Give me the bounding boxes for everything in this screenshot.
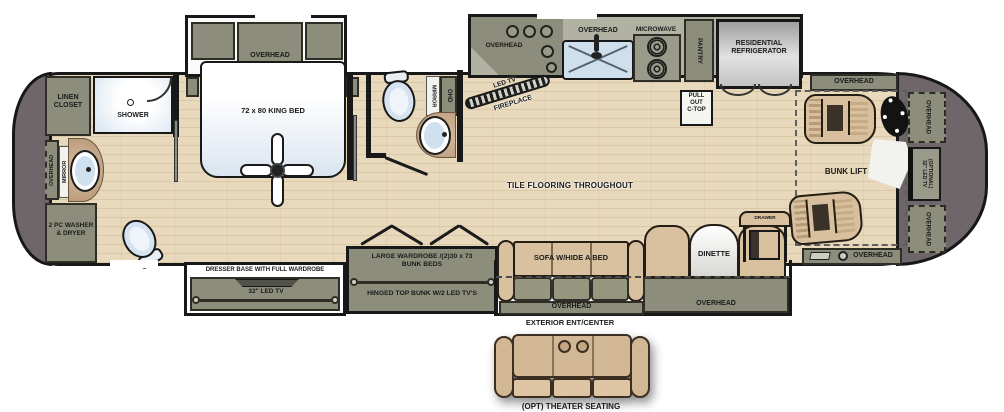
rear-faucet-icon — [86, 167, 91, 172]
entry-window — [110, 260, 158, 268]
burner-icon — [647, 59, 667, 79]
rear-overhead-cabinet: OVERHEAD — [45, 140, 59, 200]
wall-bath-right — [457, 70, 463, 162]
plate-icon — [541, 45, 554, 58]
tv-32-label: 32" LED TV — [215, 288, 317, 296]
kitchen-corner-overhead-label: OVERHEAD — [471, 42, 537, 50]
ceiling-fan-icon — [271, 133, 284, 166]
sofa-seat-cushion — [513, 277, 552, 301]
front-right-overhead-upper: OVERHEAD — [908, 92, 946, 143]
bath-toilet-icon — [377, 69, 420, 127]
ceiling-fan-hub-icon — [270, 163, 285, 178]
dinette-overhead-label: OVERHEAD — [658, 300, 774, 308]
wall-bath-left — [366, 72, 371, 158]
rail-knob-icon — [192, 296, 200, 304]
bath-ohd-cabinet: OHD — [440, 76, 457, 116]
drawer-leg — [743, 226, 746, 262]
plate-icon — [506, 25, 519, 38]
cupholder-icon — [576, 340, 589, 353]
drawer-leg — [784, 226, 787, 262]
passenger-seat — [788, 190, 864, 246]
pocket-door-bedroom — [353, 115, 357, 181]
bedroom-overhead-label: OVERHEAD — [237, 52, 303, 60]
kitchen-faucet-base-icon — [591, 52, 602, 59]
kitchen-slide-window — [537, 12, 597, 19]
front-optional-tv: (OPTIONAL) 32" LED TV — [908, 147, 941, 201]
driver-seat — [804, 94, 876, 144]
washer-dryer-label: 2 PC WASHER & DRYER — [43, 222, 99, 237]
plate-icon — [523, 25, 536, 38]
rear-sink-basin — [75, 156, 95, 186]
theater-back — [512, 334, 632, 378]
ceiling-fan-icon — [281, 164, 314, 177]
front-overhead-top-label: OVERHEAD — [810, 78, 898, 86]
desk-chair-back — [751, 232, 759, 258]
bunk-rail — [354, 281, 490, 284]
shelf-item-icon — [809, 252, 831, 260]
rail-knob-icon — [350, 278, 358, 286]
shower-label: SHOWER — [93, 112, 173, 120]
king-bed-label: 72 x 80 KING BED — [200, 107, 346, 116]
sofa-seat-cushion — [591, 277, 629, 301]
theater-seating-label: (OPT) THEATER SEATING — [501, 402, 641, 411]
theater-seat-cushion — [592, 378, 632, 398]
rv-floorplan: LINEN CLOSET SHOWER OVERHEAD MIRROR 2 PC… — [0, 0, 1004, 412]
front-right-overhead-lower: OVERHEAD — [908, 205, 946, 253]
nightstand-left — [186, 77, 199, 97]
sofa-seat-cushion — [552, 277, 591, 301]
pocket-door-rear — [174, 120, 178, 182]
theater-divider — [552, 336, 554, 376]
microwave-label: MICROWAVE — [628, 26, 684, 34]
drawer-label: DRAWER — [739, 216, 791, 222]
dresser-label: DRESSER BASE WITH FULL WARDROBE — [186, 267, 344, 274]
dresser-rail — [196, 299, 334, 302]
rail-knob-icon — [331, 296, 339, 304]
bedroom-slide-window — [255, 13, 311, 20]
bath-mirror: MIRROR — [426, 76, 440, 116]
refrigerator-label: RESIDENTIAL REFRIGERATOR — [716, 40, 802, 57]
kitchen-faucet-icon — [594, 34, 599, 52]
tv-32-icon — [235, 279, 299, 287]
front-overhead-bottom-label: OVERHEAD — [845, 252, 901, 260]
theater-divider — [592, 336, 594, 376]
wall-bath-bottom — [366, 153, 386, 158]
exterior-center-label: EXTERIOR ENT/CENTER — [500, 319, 640, 328]
cupholder-icon — [558, 340, 571, 353]
theater-seat-cushion — [512, 378, 552, 398]
ceiling-fan-icon — [240, 164, 273, 177]
theater-armrest — [494, 336, 514, 398]
bedroom-cabinet-left — [191, 22, 235, 60]
bedroom-cabinet-right — [305, 22, 343, 60]
theater-seating — [490, 330, 654, 400]
burner-icon — [647, 37, 667, 57]
shower-drain-icon — [127, 99, 134, 106]
plate-icon — [540, 25, 553, 38]
theater-seat-cushion — [552, 378, 592, 398]
dinette-label: DINETTE — [683, 250, 745, 259]
bath-faucet-icon — [442, 132, 447, 137]
sofa-overhead-label: OVERHEAD — [499, 303, 644, 311]
sofa-label: SOFA W/HIDE A BED — [513, 254, 629, 263]
linen-closet-label: LINEN CLOSET — [45, 94, 91, 111]
bunk-label-1: LARGE WARDROBE /(2)30 x 73 BUNK BEDS — [348, 253, 496, 269]
flooring-note: TILE FLOORING THROUGHOUT — [499, 181, 641, 190]
theater-armrest — [630, 336, 650, 398]
slide-travel-dashed-line — [496, 276, 790, 278]
ceiling-fan-icon — [271, 174, 284, 207]
pantry: PANTRY — [684, 19, 714, 82]
bunk-label-2: HINGED TOP BUNK W/2 LED TV'S — [348, 290, 496, 298]
pullout-countertop-label: PULL OUT C-TOP — [680, 93, 713, 114]
